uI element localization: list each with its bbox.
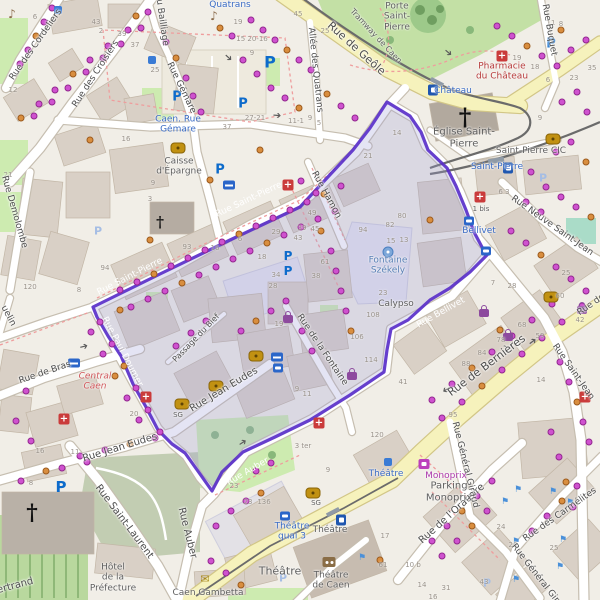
pharmacy-icon: + <box>497 51 508 62</box>
poi-dot <box>308 67 315 74</box>
poi-dot <box>145 407 152 414</box>
poi-label: SG <box>311 499 321 507</box>
poi-dot <box>519 351 526 358</box>
poi-dot <box>253 223 260 230</box>
poi-dot <box>168 263 175 270</box>
poi-dot <box>469 365 476 372</box>
envelope-icon: ✉ <box>200 573 209 586</box>
pharmacy-icon: + <box>283 180 294 191</box>
parking-icon: P <box>215 163 225 178</box>
bus-icon <box>481 247 491 256</box>
poi-dot <box>59 465 66 472</box>
poi-dot <box>509 33 516 40</box>
house-number: 42 <box>576 316 585 324</box>
poi-dot <box>230 256 237 263</box>
street-label: Boulevard Bertrand <box>0 576 35 600</box>
house-number: 94 <box>101 264 110 272</box>
poi-dot <box>580 419 587 426</box>
house-number: 59 <box>536 332 545 340</box>
house-number: 14 <box>418 581 427 589</box>
poi-dot <box>240 57 247 64</box>
poi-dot <box>579 303 586 310</box>
poi-dot <box>449 381 456 388</box>
poi-dot <box>147 237 154 244</box>
poi-dot <box>196 272 203 279</box>
poi-label: Caen Gambetta <box>173 588 244 598</box>
house-number: 136 <box>257 498 270 506</box>
poi-dot <box>213 523 220 530</box>
house-number: 7 <box>491 279 495 287</box>
house-number: 94 <box>359 226 368 234</box>
poi-dot <box>315 216 322 223</box>
poi-dot <box>151 271 158 278</box>
house-number: 19 <box>513 54 522 62</box>
poi-dot <box>568 139 575 146</box>
house-number: 19 <box>275 320 284 328</box>
poi-label: SG <box>173 411 183 419</box>
pharmacy-icon: + <box>475 192 486 203</box>
poi-dot <box>553 149 560 156</box>
kiosk-icon <box>54 6 62 14</box>
street-label: Rue de la Fontaine <box>294 312 349 387</box>
poi-dot <box>523 199 530 206</box>
bank-icon <box>175 399 190 410</box>
poi-dot <box>65 85 72 92</box>
poi-dot <box>549 301 556 308</box>
poi-dot <box>348 328 355 335</box>
poi-dot <box>573 204 580 211</box>
parking-icon: P <box>264 53 276 72</box>
poi-dot <box>333 268 340 275</box>
house-number: 8 <box>559 20 563 28</box>
cart-icon <box>419 459 430 469</box>
house-number: 9 <box>250 49 254 57</box>
poi-dot <box>529 528 536 535</box>
parking-icon: P <box>483 577 491 590</box>
poi-label: Théâtre <box>313 525 348 535</box>
poi-dot <box>70 71 77 78</box>
music-icon: ♪ <box>210 9 218 23</box>
poi-label: Bellivet <box>462 226 496 236</box>
poi-dot <box>207 177 214 184</box>
flag-icon: ⚑ <box>566 498 574 508</box>
poi-dot <box>497 327 504 334</box>
flag-icon: ⚑ <box>514 485 522 495</box>
poi-dot <box>558 27 565 34</box>
house-number: 11-1 <box>288 117 304 125</box>
poi-dot <box>583 159 590 166</box>
fountain-icon <box>383 247 394 258</box>
street-label: Rue Hamon <box>309 170 343 221</box>
house-number: 88 <box>462 360 471 368</box>
poi-dot <box>284 47 291 54</box>
house-number: 6 <box>238 235 242 243</box>
house-number: 11 <box>303 390 312 398</box>
house-number: 16 <box>36 447 45 455</box>
poi-dot <box>298 178 305 185</box>
bank-icon <box>306 488 321 499</box>
street-label: Rue Jean Eudes <box>188 365 260 415</box>
poi-dot <box>444 523 451 530</box>
house-number: 114 <box>364 356 377 364</box>
poi-dot <box>183 75 190 82</box>
poi-dot <box>377 557 384 564</box>
poi-dot <box>338 103 345 110</box>
poi-dot <box>238 328 245 335</box>
bag-icon <box>577 306 587 314</box>
parking-icon: P <box>546 37 556 52</box>
house-number: 93 <box>183 243 192 251</box>
bed-icon <box>68 359 80 368</box>
poi-dot <box>83 69 90 76</box>
house-number: 9 <box>326 466 330 474</box>
house-number: 24 <box>497 523 506 531</box>
street-label: Rue Général Giraud <box>449 421 480 509</box>
poi-dot <box>248 17 255 24</box>
poi-dot <box>18 478 25 485</box>
house-number: 11 <box>547 19 556 27</box>
poi-dot <box>489 349 496 356</box>
arrow-icon: ➔ <box>236 436 249 450</box>
house-number: 78 <box>497 336 506 344</box>
poi-dot <box>18 115 25 122</box>
poi-dot <box>528 169 535 176</box>
poi-dot <box>554 63 561 70</box>
poi-dot <box>268 308 275 315</box>
poi-dot <box>208 558 215 565</box>
house-number: 37 <box>131 41 140 49</box>
poi-dot <box>109 341 116 348</box>
house-number: 6 3 <box>498 188 509 196</box>
poi-dot <box>558 194 565 201</box>
pharmacy-icon: + <box>314 418 325 429</box>
bus-icon <box>273 364 283 373</box>
poi-dot <box>87 137 94 144</box>
poi-dot <box>202 247 209 254</box>
poi-dot <box>539 53 546 60</box>
house-number: 39 <box>118 30 127 38</box>
church-icon: † <box>156 213 164 231</box>
parking-icon: P <box>279 572 287 585</box>
poi-dot <box>570 504 577 511</box>
poi-dot <box>283 298 290 305</box>
street-label: Rue Gémare <box>164 61 198 116</box>
poi-dot <box>509 333 516 340</box>
house-number: 29 <box>272 228 281 236</box>
poi-dot <box>459 399 466 406</box>
house-number: 43 <box>294 234 303 242</box>
music-icon: ♪ <box>8 7 16 21</box>
house-number: 8 <box>29 479 33 487</box>
poi-dot <box>145 296 152 303</box>
poi-dot <box>324 91 331 98</box>
poi-dot <box>77 453 84 460</box>
bag-icon <box>283 315 293 323</box>
poi-label: Quatrans <box>209 0 250 10</box>
poi-dot <box>49 99 56 106</box>
house-number: 21 <box>4 171 13 179</box>
tram-icon <box>428 85 438 96</box>
poi-dot <box>588 214 595 221</box>
poi-dot <box>566 379 573 386</box>
house-number: 28 <box>508 282 517 290</box>
street-label: Rue Saint-Laurent <box>92 483 155 562</box>
street-label: Rue des Croisiers <box>71 39 122 110</box>
house-number: 13 <box>400 236 409 244</box>
parking-icon: P <box>172 90 182 105</box>
poi-dot <box>236 231 243 238</box>
flag-icon: ⚑ <box>549 487 557 497</box>
house-number: 45 <box>294 10 303 18</box>
poi-dot <box>112 373 119 380</box>
house-number: 19 <box>234 18 243 26</box>
pharmacy-icon: + <box>580 392 591 403</box>
house-number: 23 <box>570 74 579 82</box>
house-number: 10 b <box>405 561 421 569</box>
poi-dot <box>127 441 134 448</box>
poi-dot <box>173 343 180 350</box>
poi-label: Église Saint- Pierre <box>433 127 495 150</box>
poi-dot <box>499 367 506 374</box>
bank-icon <box>546 134 561 145</box>
poi-dot <box>52 87 59 94</box>
poi-dot <box>439 415 446 422</box>
poi-label: Saint-Pierre CIC <box>496 146 566 156</box>
poi-dot <box>556 454 563 461</box>
poi-dot <box>13 418 20 425</box>
street-label: Rue Général Giraud <box>509 542 572 600</box>
house-number: 39 <box>298 224 307 232</box>
house-number: 27-21 <box>245 114 265 122</box>
house-number: 38 <box>312 272 321 280</box>
house-number: 6 <box>33 13 37 21</box>
poi-dot <box>31 113 38 120</box>
house-number: 80 <box>398 212 407 220</box>
house-number: 23 <box>244 498 253 506</box>
parking-icon: P <box>539 172 547 185</box>
poi-dot <box>133 385 140 392</box>
poi-dot <box>454 538 461 545</box>
flag-icon: ⚑ <box>358 553 366 563</box>
house-number: 120 <box>23 283 36 291</box>
poi-dot <box>117 307 124 314</box>
poi-dot <box>281 232 288 239</box>
poi-dot <box>238 582 245 589</box>
poi-label: Caisse d'Épargne <box>156 157 202 178</box>
tram-icon <box>503 163 513 174</box>
street-label: Rue Auber <box>225 456 271 488</box>
map-canvas[interactable]: PPPPPPPPPPPP†††+++++++✉♪♪⚑⚑⚑⚑⚑⚑⚑⚑⚑➔➔➔➔➔➔… <box>0 0 600 600</box>
poi-label: Tramway de Caen <box>348 7 403 66</box>
poi-dot <box>583 37 590 44</box>
poi-dot <box>338 183 345 190</box>
poi-dot <box>538 209 545 216</box>
poi-dot <box>217 25 224 32</box>
poi-dot <box>228 508 235 515</box>
bus-icon <box>280 512 290 521</box>
house-number: 82 <box>386 221 395 229</box>
street-label: Allée des Quatrans <box>305 27 324 113</box>
parking-icon: P <box>238 97 248 112</box>
bed-icon <box>271 353 283 362</box>
poi-dot <box>309 348 316 355</box>
poi-dot <box>173 55 180 62</box>
house-number: 84 <box>478 349 487 357</box>
poi-dot <box>118 41 125 48</box>
flag-icon: ⚑ <box>512 575 520 585</box>
poi-label: Central Caen <box>79 372 112 393</box>
poi-dot <box>121 363 128 370</box>
arrow-icon: ➔ <box>79 341 90 354</box>
poi-dot <box>268 85 275 92</box>
poi-dot <box>268 460 275 467</box>
poi-dot <box>489 478 496 485</box>
poi-label: Parking Monoprix <box>426 481 472 504</box>
street-label: uelin <box>0 304 18 328</box>
poi-dot <box>213 264 220 271</box>
poi-dot <box>124 395 131 402</box>
arrow-icon: ➔ <box>441 46 454 60</box>
street-label: Rue Auber <box>175 506 199 559</box>
poi-label: Porte Saint- Pierre <box>384 1 410 32</box>
house-number: 31 <box>442 584 451 592</box>
poi-label: Château <box>434 86 472 96</box>
poi-dot <box>574 89 581 96</box>
house-number: 43 <box>92 18 101 26</box>
poi-dot <box>133 13 140 20</box>
poi-dot <box>157 429 164 436</box>
house-number: 25 <box>321 27 330 35</box>
house-number: 15 <box>387 237 396 245</box>
poi-dot <box>298 224 305 231</box>
poi-dot <box>524 43 531 50</box>
house-number: 12 <box>9 86 18 94</box>
poi-dot <box>100 55 107 62</box>
poi-dot <box>484 508 491 515</box>
poi-dot <box>43 468 50 475</box>
house-number: 9 <box>308 114 312 122</box>
poi-dot <box>559 498 566 505</box>
poi-dot <box>559 99 566 106</box>
bank-icon <box>209 381 224 392</box>
house-number: 14 <box>393 129 402 137</box>
house-number: 8 <box>77 286 81 294</box>
house-number: 17 <box>381 532 390 540</box>
arrow-icon: ➔ <box>526 335 539 349</box>
poi-dot <box>429 397 436 404</box>
house-number: 18 <box>258 253 267 261</box>
street-label: Rue Jean Eudes <box>81 431 158 465</box>
house-number: 120 <box>370 431 383 439</box>
house-number: 25 <box>151 66 160 74</box>
poi-dot <box>584 109 591 116</box>
house-number: 2 <box>99 27 103 35</box>
house-number: 21 <box>364 152 373 160</box>
poi-dot <box>128 304 135 311</box>
poi-dot <box>229 33 236 40</box>
house-number: 43 <box>480 578 489 586</box>
house-number: 23 <box>230 482 239 490</box>
poi-dot <box>254 71 261 78</box>
poi-dot <box>296 105 303 112</box>
tram-icon <box>336 515 346 526</box>
poi-dot <box>474 493 481 500</box>
flag-icon: ⚑ <box>512 537 520 547</box>
parking-icon: P <box>56 478 67 496</box>
poi-dot <box>568 276 575 283</box>
house-number: 34 <box>272 271 281 279</box>
poi-dot <box>332 208 339 215</box>
poi-dot <box>219 239 226 246</box>
poi-dot <box>33 33 40 40</box>
poi-dot <box>568 47 575 54</box>
poi-label: Monoprix <box>425 471 467 481</box>
house-number: 3 ter <box>295 442 312 450</box>
poi-dot <box>352 115 359 122</box>
poi-dot <box>84 459 91 466</box>
poi-dot <box>23 388 30 395</box>
poi-dot <box>529 317 536 324</box>
street-label: Rue de Bernières <box>446 333 529 400</box>
poi-dot <box>479 383 486 390</box>
poi-dot <box>586 439 593 446</box>
flag-icon: ⚑ <box>556 562 564 572</box>
street-label: Rue Bellivet <box>415 295 467 330</box>
house-number: 61 <box>321 258 330 266</box>
poi-dot <box>41 19 48 26</box>
poi-dot <box>36 101 43 108</box>
house-number: 6 <box>546 76 550 84</box>
masks-icon <box>323 557 336 567</box>
house-number: 16 <box>211 244 220 252</box>
poi-dot <box>260 27 267 34</box>
house-number: 18 <box>531 63 540 71</box>
street-label: Rue de Bernières <box>576 266 600 319</box>
arrow-icon: ➔ <box>272 110 281 122</box>
house-number: 26 <box>509 541 518 549</box>
house-number: 49 <box>308 209 317 217</box>
poi-dot <box>429 538 436 545</box>
poi-dot <box>49 5 56 12</box>
house-number: 5 <box>317 119 321 127</box>
poi-label: Théâtre <box>369 469 404 479</box>
house-number: 9 <box>151 179 155 187</box>
poi-dot <box>223 570 230 577</box>
map-overlay: PPPPPPPPPPPP†††+++++++✉♪♪⚑⚑⚑⚑⚑⚑⚑⚑⚑➔➔➔➔➔➔… <box>0 0 600 600</box>
poi-dot <box>136 417 143 424</box>
poi-dot <box>257 147 264 154</box>
street-label: Rue Paul Doumer <box>99 315 145 388</box>
poi-dot <box>494 23 501 30</box>
poi-label: Pharmacie du Château <box>476 62 528 83</box>
house-number: 9 <box>534 212 538 220</box>
house-number: 41 <box>399 378 408 386</box>
poi-dot <box>548 429 555 436</box>
flag-icon: ⚑ <box>501 497 509 507</box>
poi-dot <box>313 190 320 197</box>
house-number: 95 <box>449 411 458 419</box>
poi-dot <box>87 57 94 64</box>
flag-icon: ⚑ <box>559 535 567 545</box>
poi-label: Hôtel de la Préfecture <box>90 562 136 593</box>
poi-dot <box>563 479 570 486</box>
house-number: 106 <box>350 333 363 341</box>
poi-dot <box>557 359 564 366</box>
poi-dot <box>321 191 328 198</box>
poi-dot <box>439 553 446 560</box>
poi-dot <box>508 228 515 235</box>
street-label: Rue Saint-Pierre <box>214 180 284 220</box>
